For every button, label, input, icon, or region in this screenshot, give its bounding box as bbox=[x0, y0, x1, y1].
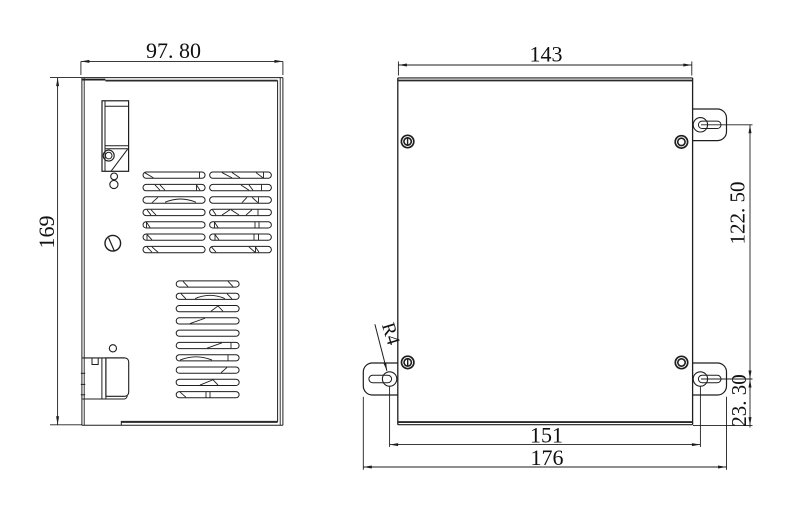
svg-text:R4: R4 bbox=[377, 320, 404, 348]
svg-text:23. 30: 23. 30 bbox=[727, 374, 751, 427]
svg-text:169: 169 bbox=[34, 216, 59, 249]
svg-text:176: 176 bbox=[531, 445, 564, 470]
svg-text:122. 50: 122. 50 bbox=[725, 182, 749, 245]
svg-text:97. 80: 97. 80 bbox=[146, 38, 201, 63]
svg-text:143: 143 bbox=[530, 42, 563, 67]
